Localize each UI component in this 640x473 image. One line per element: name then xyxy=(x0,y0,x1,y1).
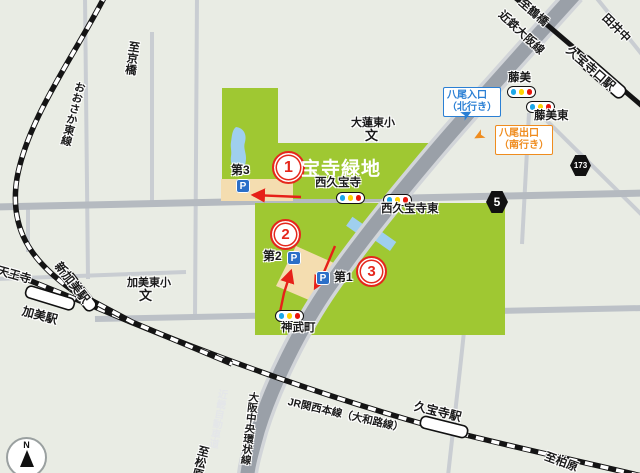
compass-rose: N xyxy=(6,437,47,473)
signal-yellow-light xyxy=(287,313,293,319)
signal-yellow-light xyxy=(519,89,525,95)
yao-entrance-line1: 八尾入口 xyxy=(447,90,497,102)
school-symbol-icon: 文 xyxy=(365,129,378,143)
parking-2-label: 第2 xyxy=(263,250,282,263)
signal-red-light xyxy=(546,104,552,110)
parking-3-label: 第3 xyxy=(231,164,250,177)
parking-icon-2: P xyxy=(287,251,301,265)
signal-red-light xyxy=(527,89,533,95)
signal-red-light xyxy=(403,197,409,203)
compass-needle-icon xyxy=(20,450,34,467)
school-symbol-icon: 文 xyxy=(139,289,152,303)
signal-jinmucho xyxy=(275,310,304,322)
parking-icon-3: P xyxy=(236,179,250,193)
parking-1-label: 第1 xyxy=(334,271,353,284)
park-area-marker-2: 2 xyxy=(270,219,301,250)
signal-nishikyuhoji xyxy=(336,192,365,204)
intersection-fujimi: 藤美 xyxy=(508,72,531,84)
signal-yellow-light xyxy=(348,195,354,201)
signal-blue-light xyxy=(340,195,346,201)
map-geometry xyxy=(0,0,640,473)
yao-exit-line2: （南行き） xyxy=(499,140,549,152)
park-area-marker-3: 3 xyxy=(356,256,387,287)
signal-yellow-light xyxy=(395,197,401,203)
signal-blue-light xyxy=(530,104,536,110)
signal-red-light xyxy=(295,313,301,319)
signal-fujimi xyxy=(507,86,536,98)
yao-exit-sign: 八尾出口 （南行き） xyxy=(495,125,553,155)
compass-north-label: N xyxy=(23,441,30,450)
signal-red-light xyxy=(356,195,362,201)
intersection-jinmucho: 神武町 xyxy=(281,322,316,334)
intersection-nishikyuhoji: 西久宝寺 xyxy=(315,177,361,189)
intersection-fujimi-higashi: 藤美東 xyxy=(534,110,569,122)
signal-blue-light xyxy=(279,313,285,319)
signal-blue-light xyxy=(511,89,517,95)
yao-exit-line1: 八尾出口 xyxy=(499,128,549,140)
parking-icon-1: P xyxy=(316,271,330,285)
access-map: 1 宝寺緑地 2 3 第3 P 第2 P P 第1 西久宝寺 西久宝寺東 神武町… xyxy=(0,0,640,473)
signal-yellow-light xyxy=(538,104,544,110)
intersection-nishikyuhoji-higashi: 西久宝寺東 xyxy=(381,203,439,215)
signal-blue-light xyxy=(387,197,393,203)
